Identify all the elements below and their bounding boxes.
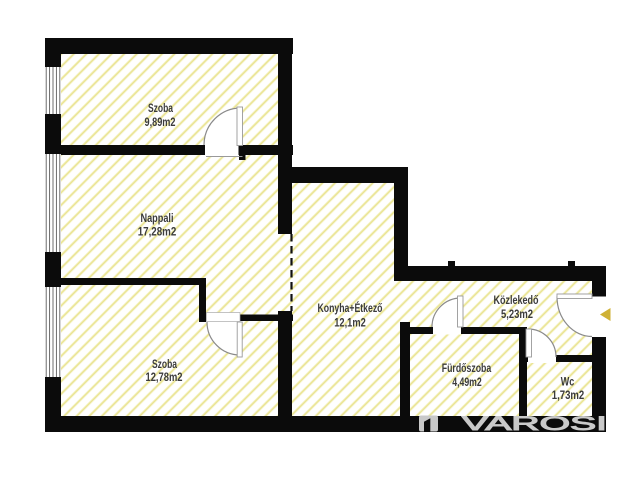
svg-text:1,73m2: 1,73m2 — [552, 390, 585, 402]
svg-text:Fürdőszoba: Fürdőszoba — [442, 363, 492, 375]
svg-text:9,89m2: 9,89m2 — [145, 117, 176, 129]
svg-text:17,28m2: 17,28m2 — [138, 227, 177, 239]
svg-text:5,23m2: 5,23m2 — [501, 309, 533, 321]
svg-text:Közlekedő: Közlekedő — [494, 295, 539, 307]
svg-text:Nappali: Nappali — [141, 213, 174, 225]
svg-text:12,1m2: 12,1m2 — [334, 318, 366, 330]
svg-text:Szoba: Szoba — [152, 359, 177, 371]
svg-text:Szoba: Szoba — [148, 103, 173, 115]
svg-text:Wc: Wc — [561, 377, 575, 389]
svg-text:4,49m2: 4,49m2 — [452, 377, 482, 389]
svg-text:VAROSI: VAROSI — [462, 413, 607, 435]
svg-text:12,78m2: 12,78m2 — [146, 372, 183, 384]
svg-text:Konyha+Étkező: Konyha+Étkező — [318, 302, 383, 315]
